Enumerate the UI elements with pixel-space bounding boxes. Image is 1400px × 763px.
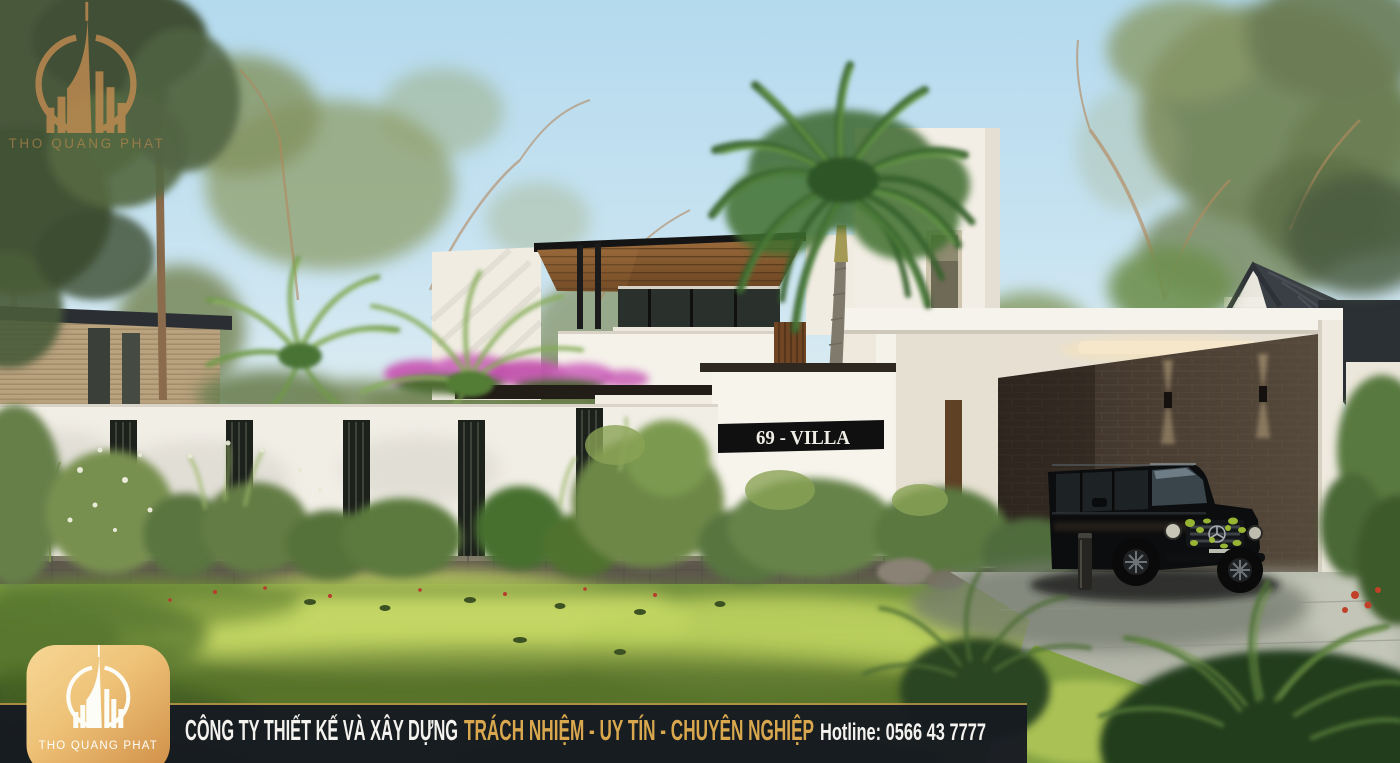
svg-text:CÔNG TY THIẾT KẾ VÀ XÂY DỰNG: CÔNG TY THIẾT KẾ VÀ XÂY DỰNG [185,713,458,747]
svg-text:THO QUANG PHAT: THO QUANG PHAT [39,740,158,752]
svg-text:THO QUANG PHAT: THO QUANG PHAT [9,136,166,151]
svg-text:69 - VILLA: 69 - VILLA [756,427,851,449]
svg-text:TRÁCH NHIỆM - UY TÍN - CHUYÊN: TRÁCH NHIỆM - UY TÍN - CHUYÊN NGHIỆP [464,713,814,747]
svg-text:Hotline: 0566 43 7777: Hotline: 0566 43 7777 [820,719,986,746]
